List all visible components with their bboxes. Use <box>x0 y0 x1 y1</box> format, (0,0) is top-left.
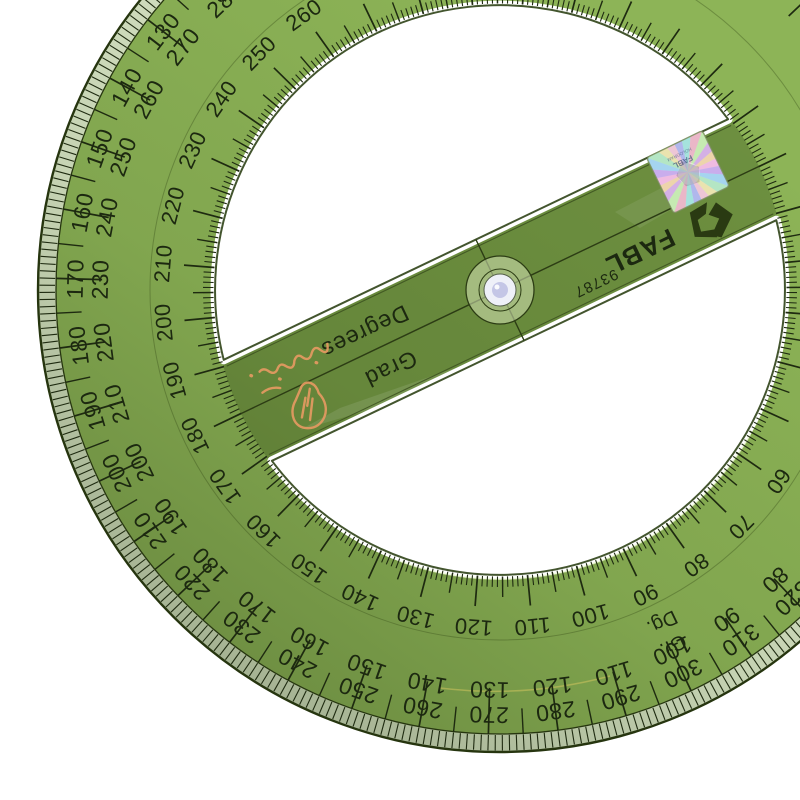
grad-tick <box>40 278 56 279</box>
degree-tick <box>204 308 214 309</box>
grad-tick <box>488 735 489 751</box>
grad-tick <box>481 735 482 751</box>
degree-tick <box>786 303 797 304</box>
degree-tick <box>518 0 519 4</box>
protractor-photo: 1202801302701402601502501602401702301802… <box>0 0 800 800</box>
degree-tick <box>518 576 519 586</box>
grad-label-outer: 270 <box>469 701 510 728</box>
degree-tick <box>513 576 514 587</box>
grad-label-inner: 230 <box>87 259 114 300</box>
grad-label-inner: 220 <box>88 321 119 364</box>
degree-tick <box>482 0 483 4</box>
degree-tick <box>487 576 488 587</box>
grad-tick <box>40 306 56 307</box>
grad-label-inner: 130 <box>469 676 510 703</box>
degree-tick <box>786 272 796 273</box>
pivot-hole-center <box>492 282 508 298</box>
degree-tick <box>204 272 214 273</box>
grad-label-inner: 120 <box>531 671 574 702</box>
degree-tick <box>482 576 483 586</box>
pivot-hole <box>466 256 534 324</box>
degree-tick <box>513 0 514 4</box>
pivot-highlight <box>495 285 500 290</box>
grad-label-outer: 170 <box>62 259 89 300</box>
degree-label: 110 <box>513 612 552 640</box>
grad-tick <box>516 735 517 751</box>
degree-tick <box>203 277 214 278</box>
degree-label: 120 <box>453 613 493 641</box>
degree-tick <box>786 308 796 309</box>
grad-tick <box>40 271 56 272</box>
degree-tick <box>487 0 488 4</box>
degree-tick <box>786 277 797 278</box>
degree-tick <box>203 303 214 304</box>
degree-label: 200 <box>149 302 178 342</box>
degree-label: 210 <box>149 243 177 283</box>
